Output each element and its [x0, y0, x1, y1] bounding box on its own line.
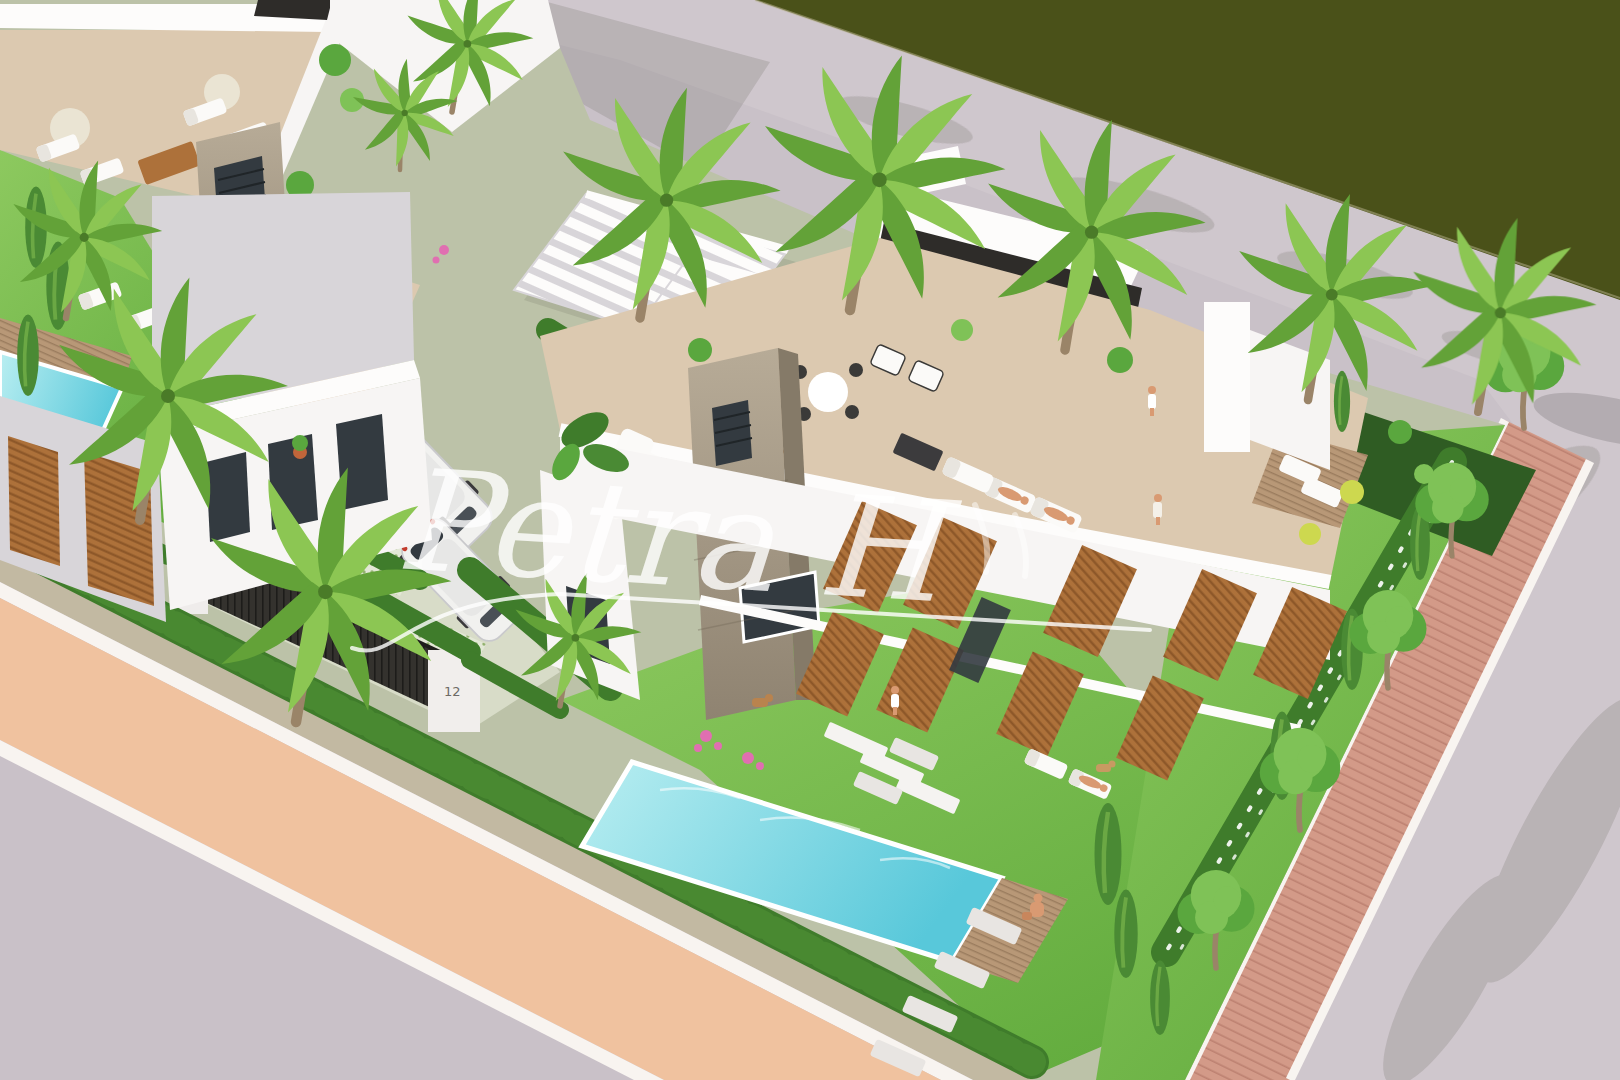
dining-table — [808, 372, 848, 412]
wood-shutter — [8, 436, 60, 566]
villa-render-viewport: 12 — [0, 0, 1620, 1080]
house-number: 12 — [444, 684, 461, 699]
villa-render: 12 — [0, 0, 1620, 1080]
lime-pouf — [1299, 523, 1321, 545]
terrace-pillar — [1204, 302, 1250, 452]
lime-pouf — [1340, 480, 1364, 504]
